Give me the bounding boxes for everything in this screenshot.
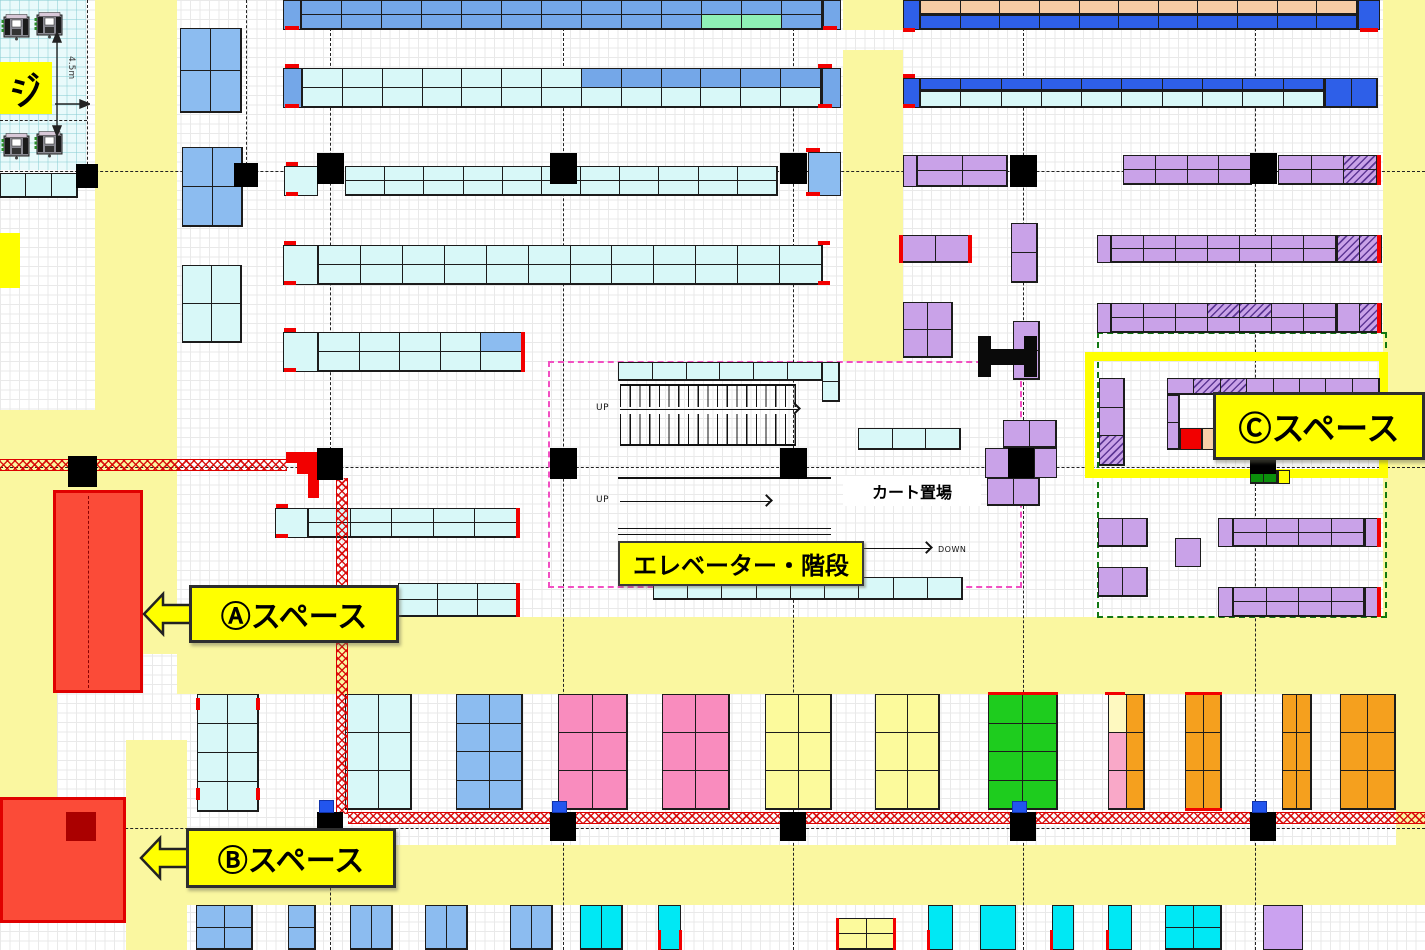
shelf-cell: [1304, 304, 1336, 318]
shelf-cell: [963, 171, 1008, 186]
shelf-block: [980, 905, 1016, 950]
shelf-block: [350, 905, 393, 950]
shelf-cell: [1112, 236, 1144, 249]
shelf-cell: [1341, 771, 1368, 809]
red-tick: [903, 104, 915, 108]
shelf-block: [1233, 518, 1365, 547]
shelf-cell: [351, 523, 393, 537]
shelf-cell: [1004, 421, 1030, 447]
shelf-cell: [183, 266, 212, 304]
shelf-cell: [1203, 79, 1243, 90]
shelf-cell: [302, 1, 342, 15]
shelf-cell: [1080, 1, 1120, 14]
red-tick: [1377, 235, 1381, 263]
red-tick: [1377, 303, 1381, 333]
shelf-cell: [361, 246, 403, 265]
shelf-block: [822, 68, 841, 108]
shelf-cell: [581, 167, 620, 181]
shelf-cell: [619, 363, 653, 380]
shelf-cell: [403, 246, 445, 265]
shelf-cell: [52, 174, 77, 197]
shelf-cell: [1283, 733, 1297, 771]
pillar: [780, 448, 807, 479]
shelf-cell: [612, 246, 654, 265]
shelf-block: [283, 245, 318, 285]
shelf-cell: [464, 167, 503, 181]
shelf-cell: [1332, 588, 1365, 602]
red-tick: [903, 28, 915, 32]
shelf-cell: [1240, 318, 1272, 332]
register-icon: [1, 14, 32, 41]
shelf-cell: [1299, 588, 1332, 602]
shelf-cell: [1317, 16, 1357, 29]
shelf-cell: [582, 15, 622, 29]
pillar: [68, 456, 97, 487]
shelf-block: [1263, 905, 1303, 950]
shelf-block: [182, 147, 243, 227]
shelf-block: [1218, 587, 1233, 617]
shelf-cell: [908, 771, 940, 809]
register-icon: [1, 133, 32, 160]
shelf-cell: [823, 363, 839, 382]
shelf-cell: [1122, 79, 1162, 90]
red-tick: [1050, 930, 1053, 950]
shelf-block: [1052, 905, 1074, 950]
shelf-cell: [766, 771, 799, 809]
shelf-cell: [581, 906, 602, 949]
shelf-cell: [571, 246, 613, 265]
shelf-cell: [738, 181, 777, 195]
shelf-cell: [1267, 519, 1300, 533]
red-tick: [196, 698, 200, 710]
pillar: [1010, 812, 1036, 841]
shelf-cell: [403, 265, 445, 284]
shelf-cell: [1188, 170, 1220, 184]
shelf-block: [1097, 235, 1111, 263]
shelf-cell: [213, 187, 243, 226]
shelf-block: [580, 905, 623, 950]
shelf-cell: [612, 265, 654, 284]
shelf-cell: [228, 695, 258, 724]
register-label: ジ: [0, 62, 52, 114]
pillar: [780, 812, 806, 841]
shelf-cell: [659, 181, 698, 195]
shelf-cell: [502, 69, 542, 88]
shelf-block: [283, 68, 302, 108]
aisle-area: [95, 0, 177, 467]
shelf-cell: [1272, 249, 1304, 262]
shelf-cell: [653, 363, 687, 380]
shelf-cell: [1368, 771, 1395, 809]
shelf-block: [1108, 905, 1132, 950]
elevator-stairs-label: エレベーター・階段: [618, 541, 864, 586]
shelf-cell: [1112, 304, 1144, 318]
shelf-cell: [198, 695, 228, 724]
grid-dash-line-vertical: [246, 0, 247, 170]
shelf-block: [0, 173, 78, 198]
shelf-cell: [434, 509, 476, 523]
shelf-cell: [799, 771, 832, 809]
down-label: DOWN: [938, 545, 966, 554]
shelf-cell: [620, 167, 659, 181]
shelf-cell: [559, 733, 593, 771]
up-label-2: UP: [596, 495, 609, 505]
shelf-cell: [351, 906, 372, 949]
shelf-block: [658, 905, 681, 950]
shelf-cell: [1219, 170, 1251, 184]
red-tick: [823, 26, 837, 30]
shelf-cell: [1279, 170, 1312, 184]
shelf-cell: [738, 265, 780, 284]
shelf-cell: [1283, 695, 1297, 733]
shelf-cell: [696, 695, 729, 733]
shelf-cell: [1198, 1, 1238, 14]
red-tick: [893, 918, 896, 950]
shelf-cell: [989, 695, 1023, 724]
shelf-cell: [1123, 519, 1147, 546]
shelf-cell: [780, 265, 822, 284]
shelf-cell: [1234, 519, 1267, 533]
pillar-marker: [1252, 801, 1267, 813]
shelf-cell: [1122, 92, 1162, 107]
shelf-cell: [1159, 16, 1199, 29]
shelf-cell: [687, 363, 721, 380]
shelf-block: [1099, 378, 1125, 466]
pillar: [234, 163, 258, 187]
pillar: [550, 448, 577, 479]
shelf-cell: [475, 509, 517, 523]
red-tick: [286, 162, 298, 166]
red-tick: [818, 104, 832, 108]
shelf-cell: [1368, 733, 1395, 771]
shelf-cell: [400, 352, 441, 371]
shelf-cell: [1023, 781, 1057, 810]
shelf-cell: [346, 771, 379, 809]
shelf-cell: [1030, 421, 1056, 447]
register-label-text: ジ: [2, 59, 49, 116]
shelf-cell: [1159, 1, 1199, 14]
shelf-cell: [343, 88, 383, 107]
shelf-cell: [593, 771, 627, 809]
red-tick: [516, 508, 520, 538]
shelf-cell: [1297, 695, 1311, 733]
shelf-cell: [441, 333, 482, 352]
shelf-cell: [1023, 695, 1057, 724]
shelf-cell: [1219, 156, 1251, 170]
aisle-area: [177, 654, 1425, 694]
shelf-cell: [342, 1, 382, 15]
shelf-cell: [346, 695, 379, 733]
shelf-cell: [663, 771, 696, 809]
shelf-cell: [457, 695, 490, 724]
grid-dash-line-vertical: [563, 828, 564, 950]
red-tick: [256, 698, 260, 710]
red-tick: [658, 930, 661, 950]
red-tick: [284, 328, 296, 332]
shelf-block: [822, 362, 840, 402]
shelf-cell: [383, 88, 423, 107]
shelf-cell: [1284, 79, 1324, 90]
shelf-cell: [1312, 170, 1345, 184]
shelf-block: [987, 478, 1040, 506]
shelf-cell: [1099, 519, 1123, 546]
shelf-cell: [867, 934, 895, 949]
shelf-cell: [1156, 156, 1188, 170]
shelf-cell: [961, 79, 1001, 90]
shelf-cell: [1208, 249, 1240, 262]
shelf-block: [1011, 223, 1038, 283]
shelf-cell: [1127, 771, 1145, 809]
shelf-cell: [1168, 396, 1179, 423]
shelf-cell: [701, 88, 741, 107]
shelf-cell: [1119, 16, 1159, 29]
shelf-cell: [1368, 695, 1395, 733]
shelf-cell: [422, 15, 462, 29]
shelf-block: [425, 905, 468, 950]
stairs-treads-lower: [620, 414, 796, 446]
stairs-treads-upper: [620, 384, 796, 407]
shelf-block: [988, 694, 1058, 810]
shelf-block: [1278, 155, 1378, 185]
shelf-cell: [1243, 79, 1283, 90]
shelf-block: [920, 91, 1325, 108]
space-a-callout: Ⓐスペース: [142, 585, 399, 643]
shelf-cell: [1341, 733, 1368, 771]
space-c-label: Ⓒスペース: [1213, 392, 1425, 460]
shelf-cell: [988, 479, 1014, 505]
shelf-cell: [663, 695, 696, 733]
shelf-block: [1325, 78, 1378, 108]
red-fence: [336, 478, 348, 814]
shelf-block: [1165, 905, 1222, 950]
shelf-cell: [1208, 318, 1240, 332]
shelf-cell: [1123, 568, 1147, 596]
shelf-cell: [582, 69, 622, 88]
shelf-block: [288, 905, 316, 950]
shelf-cell: [622, 15, 662, 29]
shelf-cell: [742, 15, 782, 29]
shelf-cell: [1163, 92, 1203, 107]
red-tick: [516, 583, 520, 617]
shelf-cell: [532, 906, 553, 949]
shelf-cell: [1198, 16, 1238, 29]
shelf-cell: [392, 509, 434, 523]
shelf-cell: [1168, 423, 1179, 450]
shelf-cell: [1267, 533, 1300, 547]
shelf-cell: [1127, 695, 1145, 733]
shelf-cell: [1240, 249, 1272, 262]
shelf-cell: [360, 333, 401, 352]
shelf-block: [302, 68, 822, 108]
shelf-cell: [921, 16, 961, 29]
shelf-cell: [961, 92, 1001, 107]
space-b-area: [0, 797, 126, 923]
shelf-block: [618, 362, 823, 381]
shelf-cell: [542, 15, 582, 29]
shelf-cell: [462, 69, 502, 88]
pillar: [317, 153, 344, 184]
aisle-area: [0, 653, 57, 797]
red-tick: [1185, 692, 1222, 695]
shelf-cell: [1176, 249, 1208, 262]
shelf-cell: [741, 88, 781, 107]
shelf-cell: [423, 88, 463, 107]
red-tick: [1377, 155, 1381, 185]
pillar: [1250, 153, 1277, 184]
shelf-cell: [1012, 224, 1037, 253]
pillar-marker: [1012, 801, 1027, 813]
shelf-block: [838, 918, 895, 950]
red-tick: [818, 241, 830, 245]
shelf-cell: [961, 1, 1001, 14]
shelf-block: [1180, 428, 1202, 450]
shelf-cell: [702, 1, 742, 15]
shelf-cell: [481, 352, 522, 371]
red-tick: [818, 64, 832, 68]
shelf-cell: [1283, 771, 1297, 809]
shelf-block: [1097, 303, 1111, 333]
shelf-block: [808, 152, 841, 196]
shelf-cell: [1272, 304, 1304, 318]
shelf-block: [1337, 235, 1382, 263]
red-tick: [276, 504, 288, 508]
shelf-cell: [1299, 519, 1332, 533]
shelf-block: [318, 245, 823, 285]
shelf-cell: [379, 733, 412, 771]
shelf-cell: [502, 1, 542, 15]
shelf-cell: [654, 265, 696, 284]
shelf-block: [1185, 694, 1222, 810]
red-tick: [1377, 518, 1381, 547]
shelf-cell: [502, 15, 542, 29]
shelf-cell: [754, 363, 788, 380]
shelf-cell: [385, 167, 424, 181]
shelf-cell: [782, 15, 822, 29]
shelf-cell: [921, 1, 961, 14]
shelf-cell: [867, 919, 895, 934]
shelf-cell: [620, 181, 659, 195]
shelf-cell: [696, 733, 729, 771]
shelf-cell: [1166, 928, 1194, 950]
shelf-cell: [1012, 253, 1037, 282]
shelf-cell: [211, 71, 241, 113]
shelf-cell: [212, 266, 241, 304]
shelf-cell: [696, 771, 729, 809]
shelf-cell: [961, 16, 1001, 29]
shelf-cell: [1332, 602, 1365, 616]
red-tick: [1106, 930, 1109, 950]
shelf-cell: [908, 695, 940, 733]
space-a-arrow-icon: [142, 591, 192, 637]
shelf-cell: [399, 600, 438, 616]
shelf-cell: [181, 29, 211, 71]
shelf-cell: [379, 695, 412, 733]
shelf-cell: [424, 181, 463, 195]
shelf-cell: [1326, 79, 1352, 107]
shelf-cell: [788, 363, 822, 380]
shelf-cell: [1119, 1, 1159, 14]
shelf-block: [318, 332, 523, 372]
shelf-cell: [989, 724, 1023, 753]
shelf-block: [180, 28, 242, 113]
shelf-cell: [457, 781, 490, 810]
shelf-cell: [1194, 928, 1222, 950]
shelf-cell: [1144, 304, 1176, 318]
shelf-cell: [1238, 16, 1278, 29]
red-tick: [285, 64, 299, 68]
shelf-cell: [502, 88, 542, 107]
shelf-cell: [1338, 304, 1360, 332]
shelf-block: [858, 428, 961, 450]
shelf-cell: [1002, 92, 1042, 107]
shelf-cell: [1304, 318, 1336, 332]
shelf-cell: [1112, 249, 1144, 262]
shelf-cell: [1023, 724, 1057, 753]
shelf-block: [1233, 587, 1365, 617]
shelf-cell: [1272, 318, 1304, 332]
shelf-cell: [181, 71, 211, 113]
pillar: [1010, 155, 1037, 187]
shelf-cell: [928, 578, 962, 599]
shelf-block: [1278, 470, 1290, 484]
red-tick: [988, 692, 1058, 695]
red-tick: [285, 104, 299, 108]
shelf-block: [662, 694, 730, 810]
shelf-cell: [1144, 318, 1176, 332]
shelf-cell: [662, 1, 702, 15]
shelf-cell: [876, 695, 908, 733]
grid-dash-line-vertical: [793, 828, 794, 950]
shelf-cell: [478, 584, 517, 600]
shelf-cell: [464, 181, 503, 195]
shelf-cell: [1186, 695, 1204, 733]
shelf-block: [1098, 567, 1148, 597]
shelf-cell: [936, 236, 970, 262]
walkway-line-upper: [618, 528, 831, 529]
shelf-cell: [1163, 79, 1203, 90]
shelf-block: [985, 448, 1009, 478]
shelf-cell: [1109, 733, 1127, 771]
shelf-block: [1218, 518, 1233, 547]
shelf-cell: [926, 429, 960, 449]
red-tick: [679, 930, 682, 950]
shelf-cell: [441, 352, 482, 371]
shelf-cell: [1284, 92, 1324, 107]
shelf-cell: [582, 88, 622, 107]
pillar-marker: [319, 800, 334, 813]
shelf-cell: [766, 695, 799, 733]
shelf-cell: [1100, 379, 1124, 408]
shelf-block: [1111, 303, 1337, 333]
shelf-cell: [859, 429, 893, 449]
shelf-block: [903, 302, 953, 358]
shelf-cell: [303, 69, 343, 88]
red-tick: [899, 235, 903, 263]
shelf-cell: [699, 181, 738, 195]
shelf-cell: [859, 578, 893, 599]
shelf-block: [1111, 235, 1337, 263]
shelf-cell: [720, 363, 754, 380]
dimension-label: 4.5m: [66, 56, 76, 79]
shelf-block: [1098, 518, 1148, 547]
shelf-cell: [928, 330, 952, 357]
shelf-cell: [183, 187, 213, 226]
red-tick: [927, 930, 930, 950]
shelf-cell: [1208, 304, 1240, 318]
pillar: [1008, 448, 1034, 478]
shelf-cell: [212, 304, 241, 342]
space-b-arrow-icon: [139, 835, 189, 881]
